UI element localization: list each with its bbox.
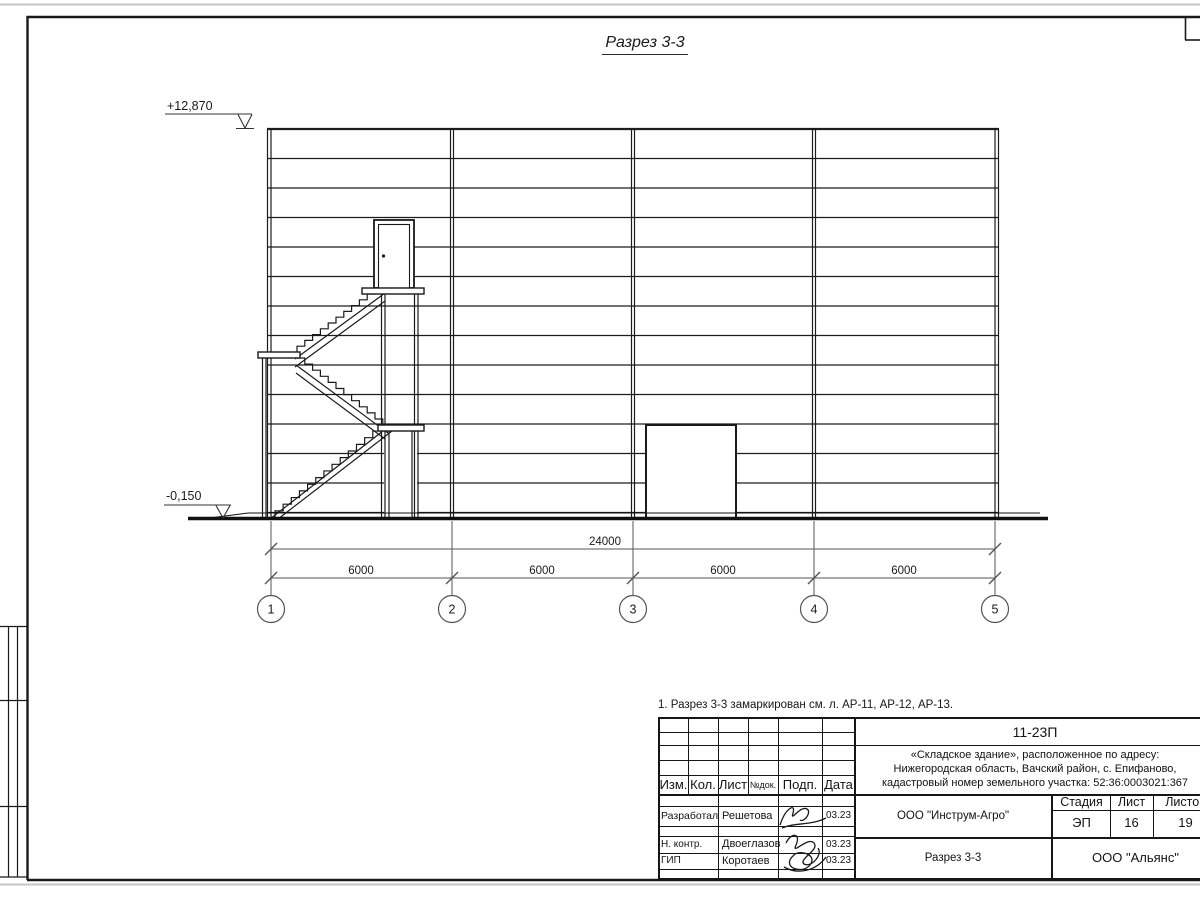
elevation-top-value: +12,870: [167, 99, 213, 113]
tb-header-data: Дата: [822, 775, 855, 795]
dim-span-1: 6000: [348, 565, 374, 577]
column-lines: [451, 129, 816, 518]
axis-number-4: 4: [811, 603, 818, 617]
tb-company: ООО "Альянс": [1053, 839, 1200, 878]
tb-doc-number: 11-23П: [855, 719, 1200, 745]
tb-project-name: «Складское здание», расположенное по адр…: [858, 748, 1200, 792]
tb-name-ncontrol: Двоеглазов: [722, 836, 777, 853]
tb-project-line1: «Складское здание», расположенное по адр…: [858, 748, 1200, 762]
tb-project-line2: Нижегородская область, Вачский район, с.…: [858, 762, 1200, 776]
drawing-sheet: 24000 6000 6000 6000 6000 1 2 3 4 5 +12,…: [0, 0, 1200, 900]
signature-ncontrol-gip: [784, 835, 826, 871]
section-title: Разрез 3-3: [602, 34, 687, 55]
dim-span-4: 6000: [891, 565, 917, 577]
axis-number-2: 2: [449, 603, 456, 617]
overhead-door: [646, 425, 736, 518]
signatures: [774, 797, 836, 877]
stair-top-landing: [362, 288, 424, 294]
roof-door: [374, 220, 414, 288]
elevation-bottom-value: -0,150: [166, 489, 201, 503]
dim-span-2: 6000: [529, 565, 555, 577]
tb-name-gip: Коротаев: [722, 853, 777, 869]
axis-number-3: 3: [630, 603, 637, 617]
dim-span-3: 6000: [710, 565, 736, 577]
tb-header-izm: Изм.: [659, 775, 688, 795]
stair-steps-upper: [297, 288, 383, 352]
tb-stage-value: ЭП: [1053, 810, 1110, 837]
dim-total-value: 24000: [589, 536, 621, 548]
stair-steps-middle: [297, 358, 383, 425]
signature-developer: [780, 808, 826, 828]
tb-header-kol: Кол.: [688, 775, 718, 795]
tb-name-developer: Решетова: [722, 806, 777, 826]
axis-number-5: 5: [992, 603, 999, 617]
tb-sheet-no: 16: [1110, 810, 1153, 837]
tb-project-line3: кадастровый номер земельного участка: 52…: [858, 776, 1200, 790]
tb-role-gip: ГИП: [661, 853, 717, 869]
tb-header-list: Лист: [718, 775, 748, 795]
tb-stage-label: Стадия: [1053, 795, 1110, 810]
tb-header-podp: Подп.: [778, 775, 822, 795]
elevation-mark-top: [165, 114, 254, 129]
tb-header-ndok: №док.: [748, 775, 778, 795]
axis-number-1: 1: [268, 603, 275, 617]
tb-list-label: Лист: [1110, 795, 1153, 810]
drawing-note: 1. Разрез 3-3 замаркирован см. л. АР-11,…: [658, 699, 953, 711]
building-facade: [267, 129, 999, 518]
tb-role-developer: Разработал: [661, 806, 717, 826]
stair-structure: [258, 288, 424, 519]
door-handle: [382, 254, 385, 257]
section-title-wrap: Разрез 3-3: [545, 34, 745, 55]
dimension-lines: [265, 521, 1001, 596]
title-block: Изм. Кол. Лист №док. Подп. Дата Разработ…: [658, 717, 1200, 880]
tb-listov-label: Листов: [1153, 795, 1200, 810]
stair-left-landing: [258, 352, 300, 358]
stair-mid-landing: [378, 425, 424, 431]
tb-sheet-total: 19: [1153, 810, 1200, 837]
tb-org: ООО "Инструм-Агро": [855, 796, 1051, 837]
corner-box: [1185, 17, 1200, 40]
tb-sheet-name: Разрез 3-3: [855, 839, 1051, 878]
tb-role-ncontrol: Н. контр.: [661, 836, 717, 853]
left-margin-stamp: [0, 626, 27, 877]
ground-line: [188, 513, 1048, 519]
